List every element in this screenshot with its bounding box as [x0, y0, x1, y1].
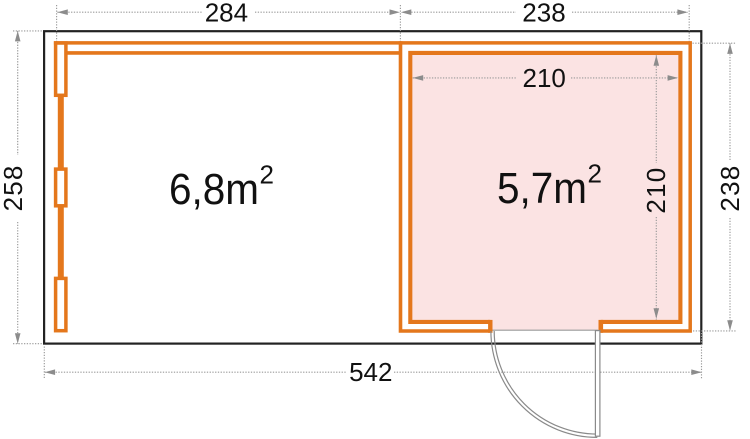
svg-text:238: 238 [715, 165, 745, 212]
svg-text:2: 2 [260, 160, 274, 190]
svg-text:210: 210 [523, 63, 566, 93]
svg-text:284: 284 [205, 0, 248, 28]
svg-text:542: 542 [349, 357, 392, 387]
svg-text:258: 258 [0, 164, 28, 211]
svg-text:238: 238 [522, 0, 565, 28]
svg-text:210: 210 [641, 167, 671, 214]
svg-text:2: 2 [588, 159, 602, 189]
svg-text:6,8m: 6,8m [169, 165, 259, 214]
svg-text:5,7m: 5,7m [497, 164, 587, 213]
